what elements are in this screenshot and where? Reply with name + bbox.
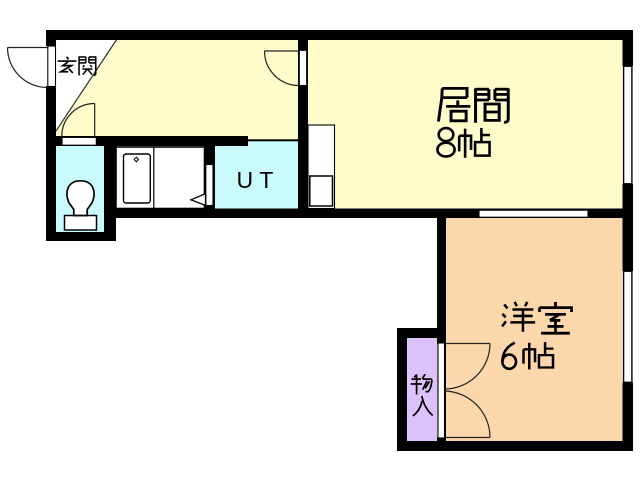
- svg-text:UT: UT: [237, 167, 280, 193]
